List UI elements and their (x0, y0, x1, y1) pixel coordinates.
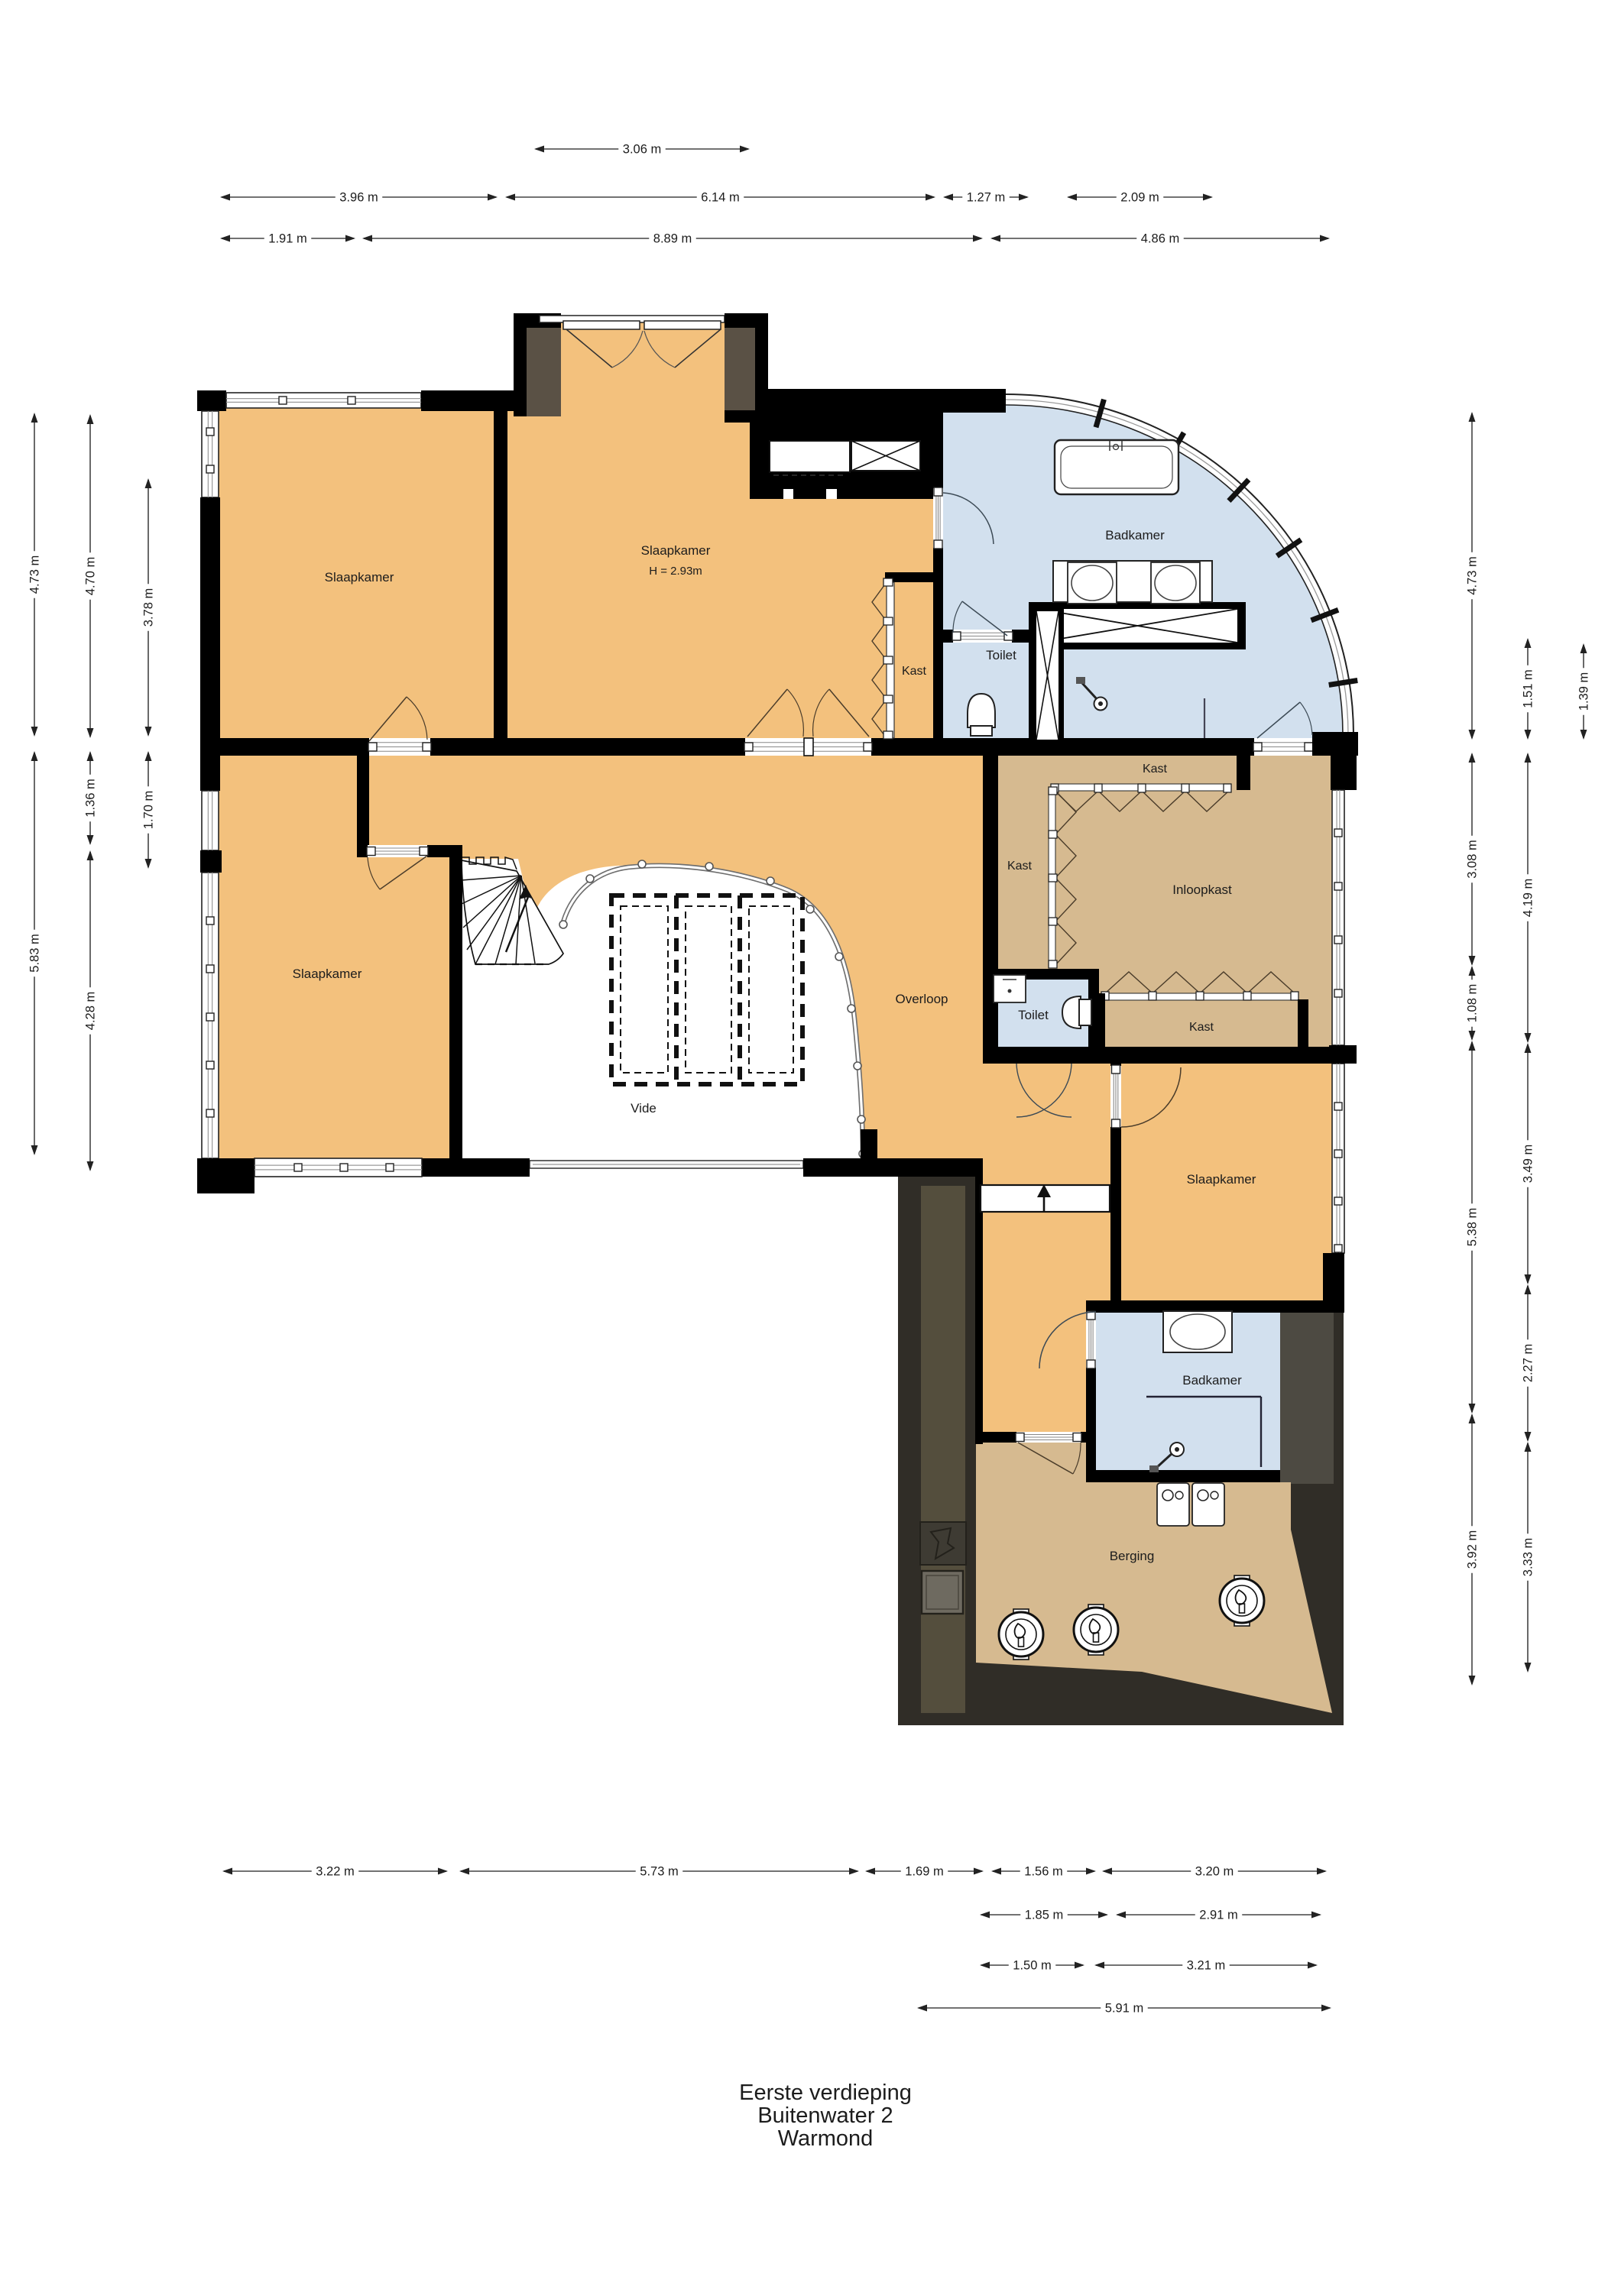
svg-text:5.38 m: 5.38 m (1466, 1208, 1480, 1246)
svg-text:1.51 m: 1.51 m (1522, 669, 1535, 708)
svg-text:Slaapkamer: Slaapkamer (641, 543, 711, 558)
svg-text:Slaapkamer: Slaapkamer (1187, 1172, 1256, 1187)
svg-text:Toilet: Toilet (1018, 1008, 1049, 1022)
svg-text:Berging: Berging (1110, 1549, 1155, 1563)
svg-text:1.39 m: 1.39 m (1577, 672, 1591, 711)
svg-text:Kast: Kast (1189, 1021, 1214, 1034)
svg-text:3.08 m: 3.08 m (1466, 840, 1480, 878)
svg-text:4.28 m: 4.28 m (84, 992, 98, 1030)
svg-text:3.33 m: 3.33 m (1522, 1538, 1535, 1576)
svg-text:1.50 m: 1.50 m (1013, 1959, 1051, 1973)
svg-text:1.85 m: 1.85 m (1025, 1909, 1063, 1922)
svg-text:4.70 m: 4.70 m (84, 557, 98, 595)
svg-text:8.89 m: 8.89 m (653, 232, 692, 246)
svg-text:4.19 m: 4.19 m (1522, 879, 1535, 917)
svg-text:1.27 m: 1.27 m (967, 191, 1005, 205)
svg-text:Kast: Kast (1143, 763, 1168, 776)
svg-text:3.20 m: 3.20 m (1195, 1865, 1234, 1879)
svg-text:Kast: Kast (1007, 860, 1033, 873)
svg-text:5.73 m: 5.73 m (640, 1865, 678, 1879)
svg-text:3.49 m: 3.49 m (1522, 1145, 1535, 1183)
svg-text:5.91 m: 5.91 m (1105, 2002, 1143, 2016)
svg-text:2.27 m: 2.27 m (1522, 1344, 1535, 1382)
svg-text:1.69 m: 1.69 m (905, 1865, 943, 1879)
svg-text:Eerste verdieping: Eerste verdieping (739, 2081, 912, 2105)
svg-text:Inloopkast: Inloopkast (1172, 882, 1232, 897)
svg-text:Kast: Kast (902, 665, 927, 678)
svg-text:3.22 m: 3.22 m (316, 1865, 354, 1879)
svg-text:Slaapkamer: Slaapkamer (325, 570, 394, 585)
svg-text:Toilet: Toilet (986, 648, 1016, 662)
svg-text:3.06 m: 3.06 m (623, 143, 661, 157)
svg-text:3.21 m: 3.21 m (1187, 1959, 1225, 1973)
svg-text:1.36 m: 1.36 m (84, 779, 98, 817)
svg-text:Badkamer: Badkamer (1182, 1373, 1242, 1388)
svg-text:1.08 m: 1.08 m (1466, 984, 1480, 1022)
svg-text:1.91 m: 1.91 m (268, 232, 306, 246)
svg-text:Slaapkamer: Slaapkamer (293, 967, 362, 981)
svg-text:H = 2.93m: H = 2.93m (649, 565, 702, 578)
svg-text:3.78 m: 3.78 m (142, 588, 156, 627)
svg-text:4.86 m: 4.86 m (1141, 232, 1179, 246)
svg-text:Badkamer: Badkamer (1105, 528, 1165, 542)
svg-text:Overloop: Overloop (896, 992, 948, 1006)
svg-text:4.73 m: 4.73 m (1466, 556, 1480, 594)
svg-text:5.83 m: 5.83 m (28, 934, 42, 972)
svg-text:4.73 m: 4.73 m (28, 555, 42, 594)
svg-text:Warmond: Warmond (778, 2126, 874, 2151)
svg-text:3.92 m: 3.92 m (1466, 1530, 1480, 1569)
svg-text:1.70 m: 1.70 m (142, 791, 156, 829)
svg-text:6.14 m: 6.14 m (701, 191, 739, 205)
svg-text:2.91 m: 2.91 m (1199, 1909, 1237, 1922)
svg-text:Buitenwater 2: Buitenwater 2 (757, 2103, 893, 2128)
svg-text:1.56 m: 1.56 m (1024, 1865, 1062, 1879)
svg-text:Vide: Vide (631, 1101, 657, 1116)
svg-text:3.96 m: 3.96 m (339, 191, 378, 205)
svg-text:2.09 m: 2.09 m (1120, 191, 1159, 205)
